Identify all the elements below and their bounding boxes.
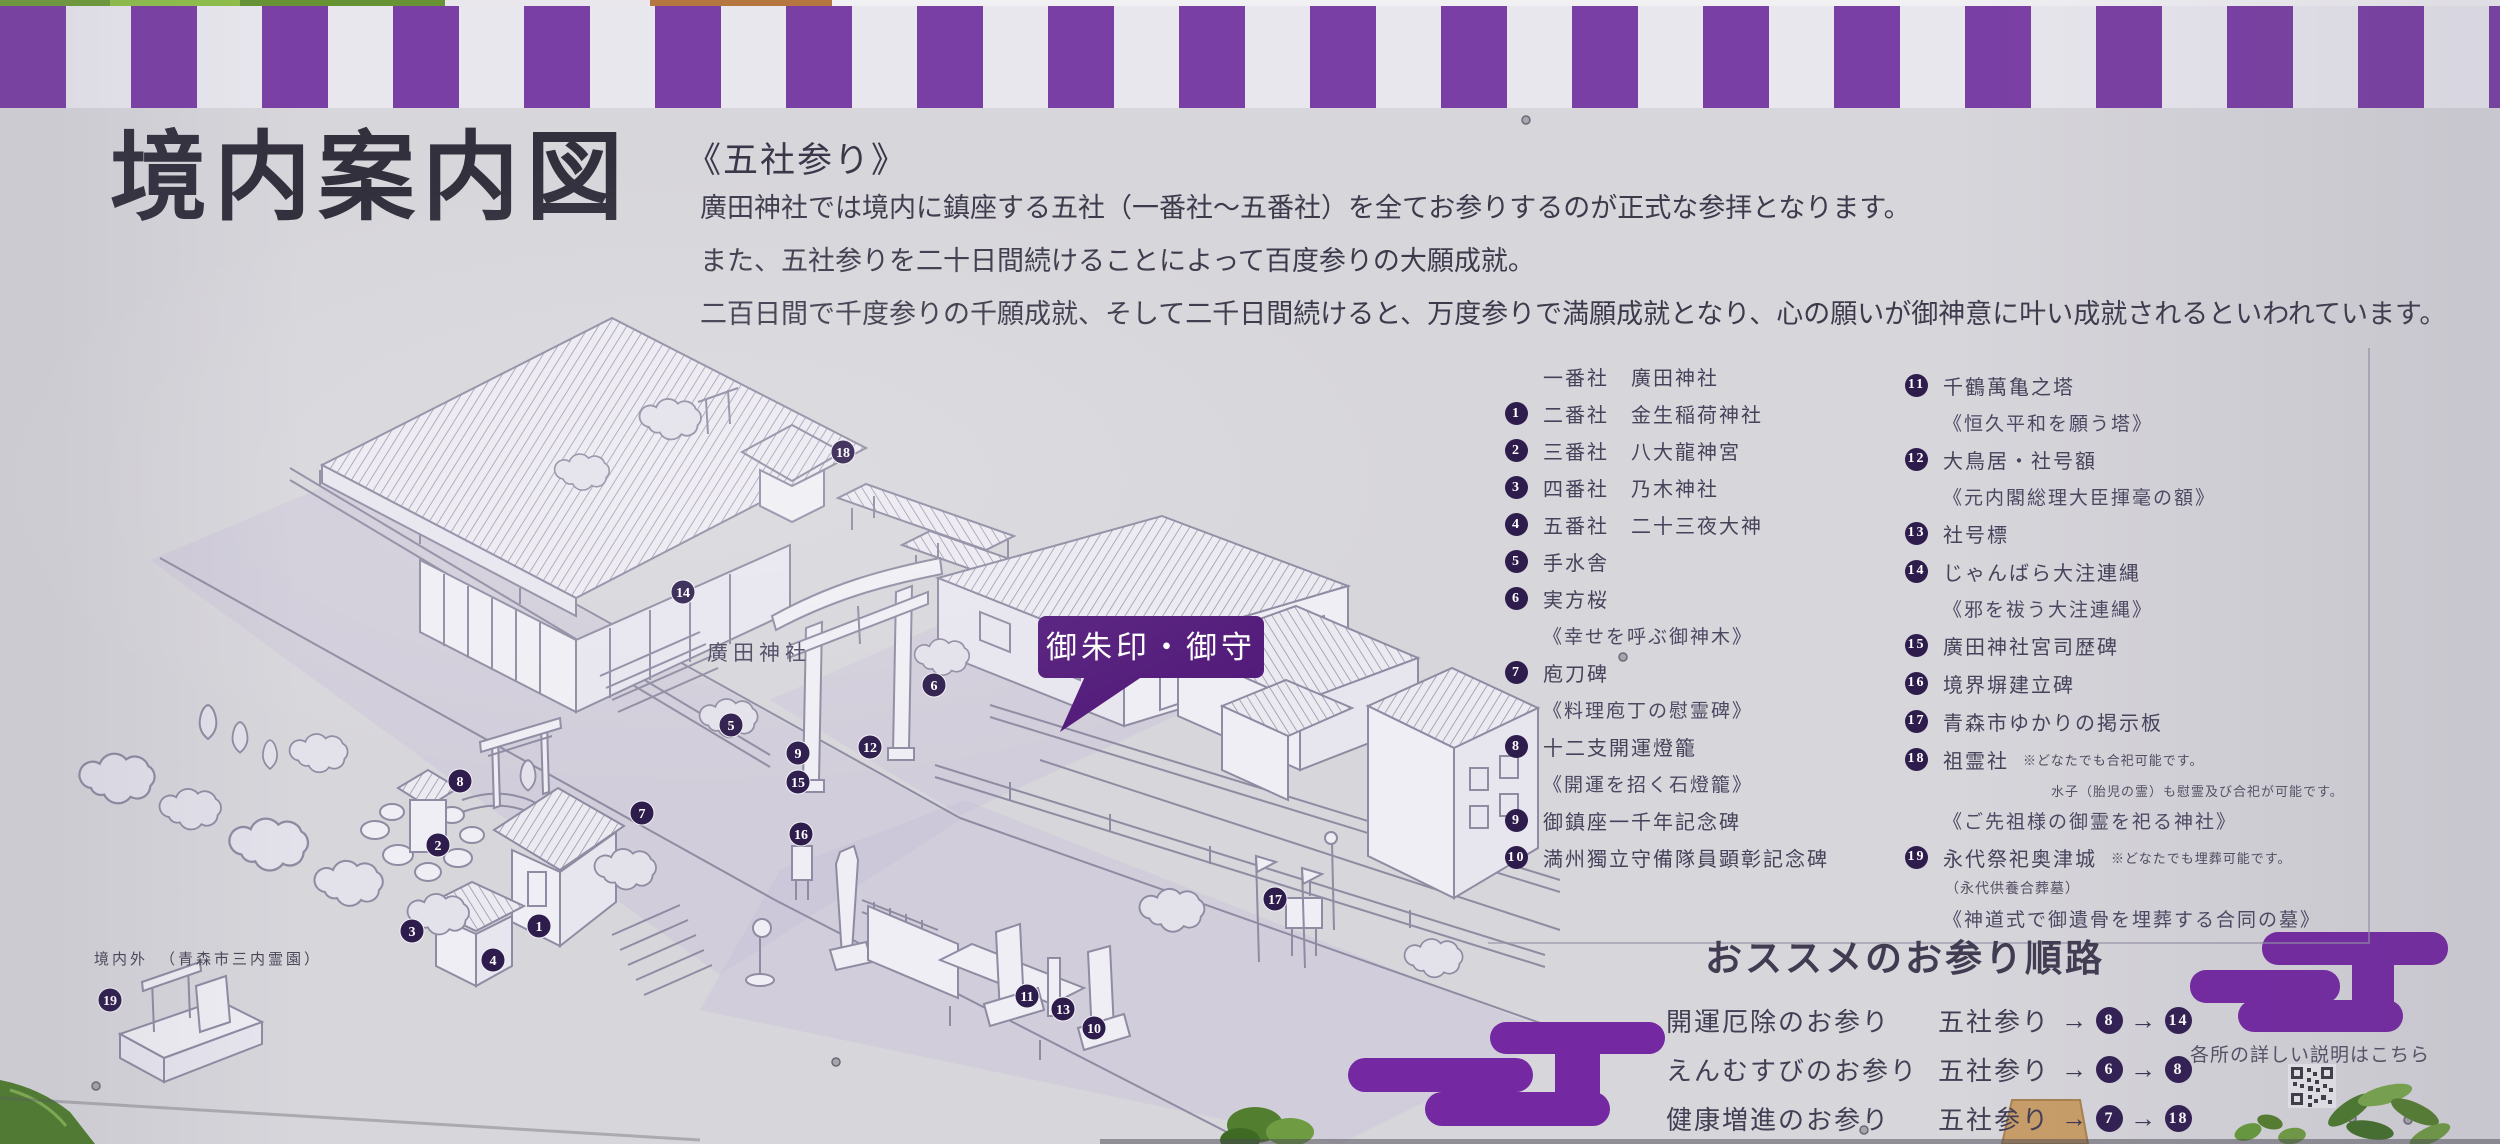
legend-label: 《元内閣総理大臣揮毫の額》 <box>1943 483 2216 510</box>
legend-label: 廣田神社宮司歴碑 <box>1943 631 2119 660</box>
legend-label: 祖霊社 <box>1943 745 2009 774</box>
svg-text:4: 4 <box>490 954 497 969</box>
legend-label: 満州獨立守備隊員顕彰記念碑 <box>1543 843 1829 872</box>
legend-row: 11千鶴萬亀之塔 <box>1905 366 2344 404</box>
legend-row: （永代供養合葬墓） <box>1905 876 2344 900</box>
legend-number-badge: 11 <box>1905 374 1928 397</box>
map-marker-16: 16 <box>789 822 813 846</box>
svg-text:15: 15 <box>791 776 805 791</box>
offsite-paren: （青森市三内霊園） <box>160 948 322 969</box>
legend-number-badge: 14 <box>1905 560 1928 583</box>
arrow-right-icon: → <box>2130 1104 2158 1134</box>
legend-row: 《料理庖丁の慰霊碑》 <box>1505 691 1829 728</box>
svg-text:10: 10 <box>1087 1022 1101 1037</box>
map-marker-2: 2 <box>426 833 450 857</box>
legend-number-badge: 19 <box>1905 846 1928 869</box>
legend-row: 一番社 廣田神社 <box>1505 358 1829 395</box>
route-number-badge: 18 <box>2165 1105 2192 1132</box>
legend-number-badge: 16 <box>1905 672 1928 695</box>
legend-row: 2三番社 八大龍神宮 <box>1505 432 1829 469</box>
legend-number-badge: 4 <box>1505 513 1528 536</box>
legend-row: 6実方桜 <box>1505 580 1829 617</box>
cloud-motif-right <box>2190 932 2448 1032</box>
legend-number-badge: 9 <box>1505 809 1528 832</box>
svg-text:8: 8 <box>457 775 464 790</box>
legend-row: 9御鎮座一千年記念碑 <box>1505 802 1829 839</box>
map-marker-13: 13 <box>1051 997 1075 1021</box>
legend-label: （永代供養合葬墓） <box>1945 878 2080 898</box>
svg-text:12: 12 <box>863 741 877 756</box>
svg-text:2: 2 <box>435 839 442 854</box>
svg-text:3: 3 <box>409 925 416 940</box>
route-prefix: 五社参り <box>1938 1051 2050 1088</box>
route-row: 健康増進のお参り五社参り→7→18 <box>1666 1094 2192 1143</box>
route-prefix: 五社参り <box>1938 1100 2050 1137</box>
route-number-badge: 14 <box>2165 1007 2192 1034</box>
legend-label: 水子（胎児の霊）も慰霊及び合祀が可能です。 <box>2051 781 2344 800</box>
legend-label: 庖刀碑 <box>1543 658 1609 687</box>
legend-label: 御鎮座一千年記念碑 <box>1543 806 1741 835</box>
routes-heading: おススメのお参り順路 <box>1690 928 2120 982</box>
legend-row: 15廣田神社宮司歴碑 <box>1905 626 2344 664</box>
legend-number-badge: 5 <box>1505 550 1528 573</box>
svg-text:1: 1 <box>536 920 543 935</box>
legend-number-badge: 18 <box>1905 748 1928 771</box>
offsite-caption: 境内外 （青森市三内霊園） <box>94 948 322 969</box>
legend-row: 19永代祭祀奥津城※どなたでも埋葬可能です。 <box>1905 838 2344 876</box>
route-row: えんむすびのお参り五社参り→6→8 <box>1666 1045 2192 1094</box>
arrow-right-icon: → <box>2061 1006 2089 1036</box>
legend-label: じゃんばら大注連縄 <box>1943 557 2141 586</box>
legend-row: 1二番社 金生稲荷神社 <box>1505 395 1829 432</box>
map-marker-6: 6 <box>922 673 946 697</box>
legend-label: 《恒久平和を願う塔》 <box>1943 409 2153 436</box>
route-label: 健康増進のお参り <box>1666 1100 1938 1137</box>
map-marker-9: 9 <box>786 741 810 765</box>
legend-label: 《幸せを呼ぶ御神木》 <box>1543 622 1753 649</box>
map-marker-3: 3 <box>400 919 424 943</box>
legend-label: 社号標 <box>1943 519 2009 548</box>
legend-inline-note: ※どなたでも埋葬可能です。 <box>2111 848 2291 867</box>
svg-text:16: 16 <box>794 828 808 843</box>
legend-label: 千鶴萬亀之塔 <box>1943 371 2075 400</box>
legend-label: 境界塀建立碑 <box>1943 669 2075 698</box>
stripe-banner <box>0 6 2500 108</box>
svg-text:14: 14 <box>676 586 690 601</box>
legend-row: 17青森市ゆかりの掲示板 <box>1905 702 2344 740</box>
routes-list: 開運厄除のお参り五社参り→8→14えんむすびのお参り五社参り→6→8健康増進のお… <box>1666 996 2192 1143</box>
legend-row: 10満州獨立守備隊員顕彰記念碑 <box>1505 839 1829 876</box>
intro-line: また、五社参りを二十日間続けることによって百度参りの大願成就。 <box>700 239 1535 278</box>
legend-row: 14じゃんばら大注連縄 <box>1905 552 2344 590</box>
route-row: 開運厄除のお参り五社参り→8→14 <box>1666 996 2192 1045</box>
map-ground <box>150 478 1560 1144</box>
route-prefix: 五社参り <box>1938 1002 2050 1039</box>
intro-line: 廣田神社では境内に鎮座する五社（一番社～五番社）を全てお参りするのが正式な参拝と… <box>700 186 1911 225</box>
legend-number-badge: 10 <box>1505 846 1528 869</box>
legend-number-badge: 12 <box>1905 448 1928 471</box>
arrow-right-icon: → <box>2130 1006 2158 1036</box>
page-title: 境内案内図 <box>110 98 630 239</box>
legend-row: 水子（胎児の霊）も慰霊及び合祀が可能です。 <box>1905 778 2344 802</box>
legend-number-badge: 2 <box>1505 439 1528 462</box>
svg-text:13: 13 <box>1056 1003 1070 1018</box>
route-number-badge: 8 <box>2096 1007 2123 1034</box>
legend-label: 手水舎 <box>1543 547 1609 576</box>
legend-row: 12大鳥居・社号額 <box>1905 440 2344 478</box>
legend-label: 《料理庖丁の慰霊碑》 <box>1543 696 1753 723</box>
legend-label: 四番社 乃木神社 <box>1543 473 1719 502</box>
legend-number-badge: 13 <box>1905 522 1928 545</box>
legend-number-badge: 8 <box>1505 735 1528 758</box>
route-label: えんむすびのお参り <box>1666 1051 1938 1088</box>
legend-row: 13社号標 <box>1905 514 2344 552</box>
legend-number-spacer <box>1505 365 1528 388</box>
route-number-badge: 7 <box>2096 1105 2123 1132</box>
offsite-label: 境内外 <box>94 948 148 969</box>
legend-number-badge: 7 <box>1505 661 1528 684</box>
legend-inline-note: ※どなたでも合祀可能です。 <box>2023 750 2203 769</box>
goshuin-badge-label: 御朱印・御守 <box>1046 630 1256 665</box>
map-marker-8: 8 <box>448 769 472 793</box>
arrow-right-icon: → <box>2130 1055 2158 1085</box>
arrow-right-icon: → <box>2061 1104 2089 1134</box>
main-shrine-label: 廣田神社 <box>707 641 811 665</box>
intro-heading: 《五社参り》 <box>686 132 908 183</box>
map-marker-11: 11 <box>1015 984 1039 1008</box>
legend-row: 《開運を招く石燈籠》 <box>1505 765 1829 802</box>
legend-label: 実方桜 <box>1543 584 1609 613</box>
route-number-badge: 8 <box>2165 1056 2192 1083</box>
svg-text:6: 6 <box>931 679 938 694</box>
legend-row: 7庖刀碑 <box>1505 654 1829 691</box>
legend-row: 3四番社 乃木神社 <box>1505 469 1829 506</box>
arrow-right-icon: → <box>2061 1055 2089 1085</box>
map-marker-17: 17 <box>1263 887 1287 911</box>
memorial-grave <box>120 962 262 1082</box>
legend-label: 五番社 二十三夜大神 <box>1543 510 1763 539</box>
map-marker-10: 10 <box>1082 1016 1106 1040</box>
map-marker-19: 19 <box>98 988 122 1012</box>
legend-label: 二番社 金生稲荷神社 <box>1543 399 1763 428</box>
legend-label: 青森市ゆかりの掲示板 <box>1943 707 2163 736</box>
legend-row: 《邪を祓う大注連縄》 <box>1905 590 2344 626</box>
svg-text:18: 18 <box>836 446 850 461</box>
legend-number-badge: 17 <box>1905 710 1928 733</box>
svg-text:19: 19 <box>103 994 117 1009</box>
legend-row: 《元内閣総理大臣揮毫の額》 <box>1905 478 2344 514</box>
legend-number-badge: 1 <box>1505 402 1528 425</box>
svg-text:7: 7 <box>639 807 646 822</box>
map-marker-14: 14 <box>671 580 695 604</box>
legend-column-left: 一番社 廣田神社1二番社 金生稲荷神社2三番社 八大龍神宮3四番社 乃木神社4五… <box>1505 358 1829 876</box>
legend-label: 永代祭祀奥津城 <box>1943 843 2097 872</box>
legend-row: 5手水舎 <box>1505 543 1829 580</box>
map-marker-1: 1 <box>527 914 551 938</box>
legend-row: 8十二支開運燈籠 <box>1505 728 1829 765</box>
qr-code-icon <box>2288 1064 2336 1108</box>
map-marker-12: 12 <box>858 735 882 759</box>
legend-row: 4五番社 二十三夜大神 <box>1505 506 1829 543</box>
route-label: 開運厄除のお参り <box>1666 1002 1938 1039</box>
legend-number-badge: 15 <box>1905 634 1928 657</box>
qr-caption: 各所の詳しい説明はこちら <box>2190 1040 2430 1067</box>
legend-label: 大鳥居・社号額 <box>1943 445 2097 474</box>
legend-label: 三番社 八大龍神宮 <box>1543 436 1741 465</box>
legend-row: 18祖霊社※どなたでも合祀可能です。 <box>1905 740 2344 778</box>
shrine-guide-signboard: 御朱印・御守 廣田神社 1234567891011121314151617181… <box>0 0 2500 1144</box>
intro-line: 二百日間で千度参りの千願成就、そして二千日間続けると、万度参りで満願成就となり、… <box>700 292 2446 331</box>
svg-text:9: 9 <box>795 747 802 762</box>
legend-label: 《ご先祖様の御霊を祀る神社》 <box>1943 807 2237 834</box>
legend-row: 《幸せを呼ぶ御神木》 <box>1505 617 1829 654</box>
legend-label: 《開運を招く石燈籠》 <box>1543 770 1753 797</box>
svg-text:11: 11 <box>1020 990 1033 1005</box>
legend-label: 一番社 廣田神社 <box>1543 362 1719 391</box>
map-marker-7: 7 <box>630 801 654 825</box>
legend-number-badge: 6 <box>1505 587 1528 610</box>
legend-number-badge: 3 <box>1505 476 1528 499</box>
legend-label: 《邪を祓う大注連縄》 <box>1943 595 2153 622</box>
route-number-badge: 6 <box>2096 1056 2123 1083</box>
legend-column-right: 11千鶴萬亀之塔《恒久平和を願う塔》12大鳥居・社号額《元内閣総理大臣揮毫の額》… <box>1905 366 2344 936</box>
map-marker-15: 15 <box>786 770 810 794</box>
legend-row: 16境界塀建立碑 <box>1905 664 2344 702</box>
map-marker-5: 5 <box>719 713 743 737</box>
map-marker-4: 4 <box>481 948 505 972</box>
svg-text:17: 17 <box>1268 893 1282 908</box>
map-marker-18: 18 <box>831 440 855 464</box>
svg-text:5: 5 <box>728 719 735 734</box>
legend-row: 《恒久平和を願う塔》 <box>1905 404 2344 440</box>
legend-label: 十二支開運燈籠 <box>1543 732 1697 761</box>
legend-row: 《ご先祖様の御霊を祀る神社》 <box>1905 802 2344 838</box>
